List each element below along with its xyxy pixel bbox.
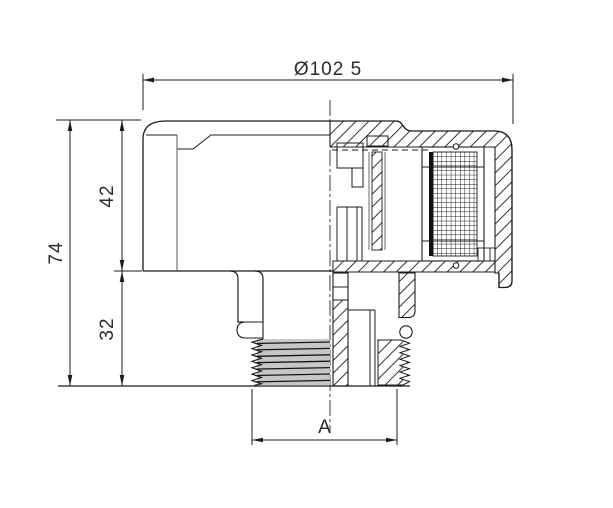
dim-label-diameter: Ø102 5 [294,59,362,80]
arrow-right-icon [386,438,397,443]
oring-lip-section [399,273,415,318]
oring-icon [400,326,412,338]
dim-label-thread-width: A [318,417,332,438]
internal-hub-parts [332,136,429,261]
filter-cartridge [422,144,495,269]
dim-label-upper-height: 42 [97,184,118,207]
filter-mesh-grid [433,152,477,256]
rivet-top-icon [453,144,459,150]
cap-bottom-flange-section [333,261,495,272]
arrow-up-icon [120,271,125,282]
thread-runout-collar [237,322,263,339]
dim-label-lower-height: 32 [97,317,118,340]
arrow-down-icon [120,260,125,271]
dim-label-overall-height: 74 [46,241,67,264]
dimensions [56,74,513,445]
rivet-bottom-icon [453,263,459,269]
lower-body-exterior [230,271,330,386]
arrow-up-icon [120,120,125,131]
arrow-down-icon [120,375,125,386]
threaded-stem-section [378,340,410,385]
arrow-left-icon [143,78,154,83]
arrow-right-icon [502,78,513,83]
inner-tube-section [372,152,382,250]
arrow-left-icon [252,438,263,443]
filter-mesh-left-bar [429,152,434,256]
arrow-up-icon [68,120,73,131]
arrow-down-icon [68,375,73,386]
section-drawing: Ø102 5 74 42 32 A [0,0,613,508]
drawing-canvas: Ø102 5 74 42 32 A [0,0,613,508]
filter-step-block [478,248,495,261]
